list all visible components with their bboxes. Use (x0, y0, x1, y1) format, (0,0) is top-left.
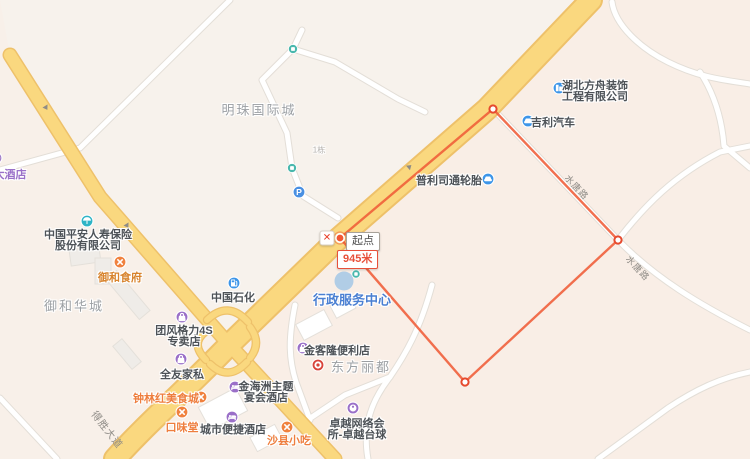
kouweitang-icon[interactable] (176, 406, 189, 419)
zhonglinhong-food-city-icon[interactable] (195, 391, 208, 404)
geely-auto-icon[interactable] (522, 115, 535, 128)
start-marker[interactable] (336, 234, 344, 242)
measure-vertex-3[interactable] (461, 378, 468, 385)
gree-4s-store-icon[interactable] (176, 311, 189, 324)
hotel-partial-icon[interactable] (0, 152, 3, 165)
mini-poi-mid-icon[interactable] (287, 163, 297, 173)
jinkelong-store-icon[interactable] (297, 342, 310, 355)
shaxian-snacks-icon[interactable] (281, 421, 294, 434)
svg-text:P: P (296, 187, 302, 197)
pingan-insurance-icon[interactable] (81, 215, 94, 228)
city-comfort-inn-icon[interactable] (226, 411, 239, 424)
bridgestone-tires-icon[interactable] (482, 173, 495, 186)
measure-close-button[interactable]: ✕ (320, 231, 335, 246)
quanyou-furniture-icon[interactable] (175, 353, 188, 366)
mini-poi-north-icon[interactable] (288, 44, 298, 54)
jinhaizhou-banquet-hotel-icon[interactable] (229, 381, 242, 394)
measure-vertex-2[interactable] (614, 236, 621, 243)
measure-distance-label: 945米 (337, 250, 378, 269)
mini-poi-admin-icon[interactable] (352, 270, 361, 279)
area-tints (0, 0, 750, 459)
map-canvas[interactable]: 大酒店明珠国际城1栋中国平安人寿保险股份有限公司御和食府御和华城中国石化行政服务… (0, 0, 750, 459)
measure-vertex-1[interactable] (489, 105, 496, 112)
measure-start-label: 起点 (346, 232, 380, 251)
bank-poi-icon[interactable] (312, 359, 325, 372)
sinopec-icon[interactable] (228, 277, 241, 290)
yuhe-restaurant-icon[interactable] (114, 256, 127, 269)
zhuoyue-club-billiards-icon[interactable] (347, 402, 360, 415)
map-base-layer (0, 0, 750, 459)
fangzhou-decoration-icon[interactable] (553, 82, 566, 95)
parking-icon[interactable]: P (293, 186, 306, 199)
